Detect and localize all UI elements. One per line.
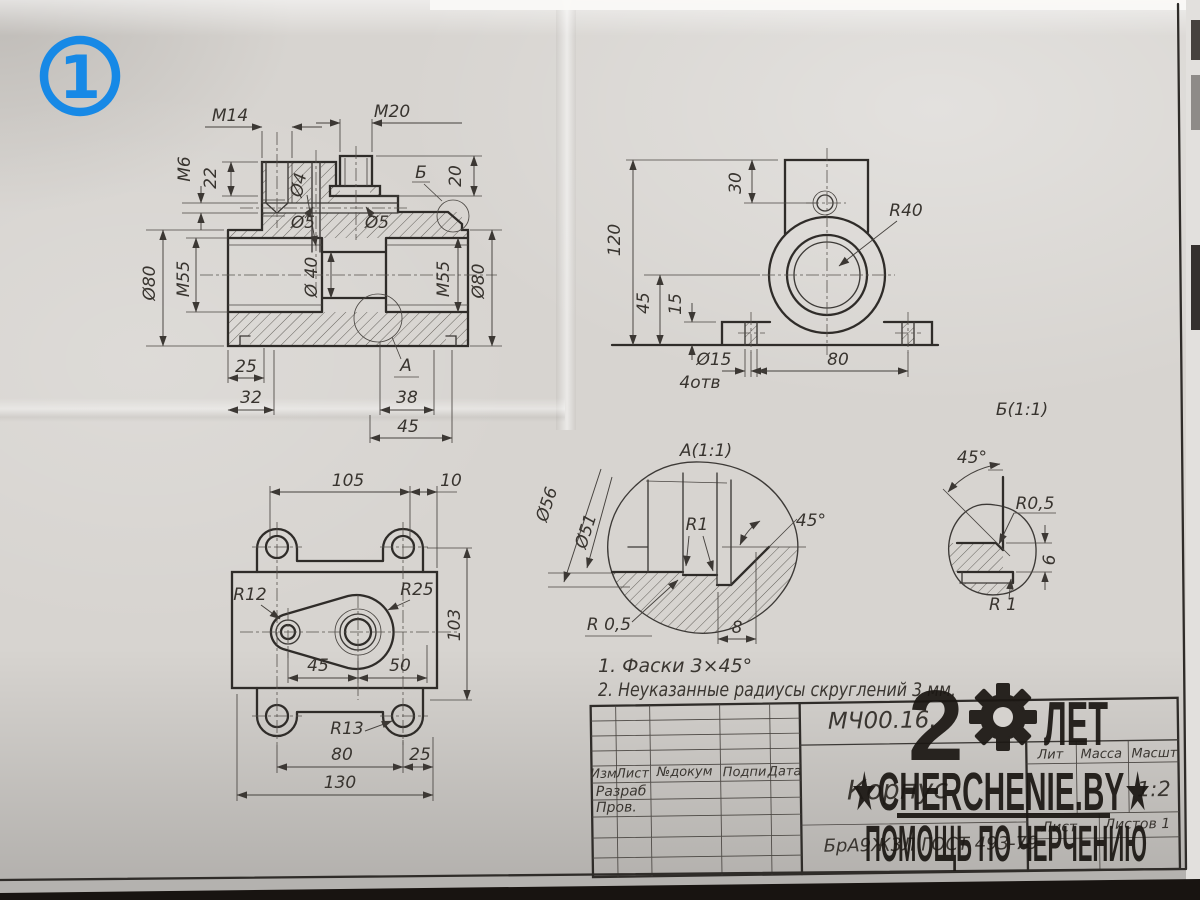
detail-b-view: Б(1:1) 45° R0,5 6 R 1	[935, 400, 1060, 615]
dim-label-15: 15	[666, 293, 686, 315]
dim-label-r05-a: R 0,5	[587, 615, 631, 635]
front-view: 120 30 R40 45 15 Ø15 4отв 80	[605, 148, 938, 393]
dim-label-d80-left: Ø80	[140, 265, 160, 301]
dim-label-m20: М20	[374, 102, 410, 122]
table-surface	[0, 879, 1200, 900]
dim-label-r25: R25	[400, 580, 433, 600]
dim-label-45h: 45	[634, 292, 654, 314]
dim-label-8: 8	[732, 618, 743, 638]
dim-label-m14: М14	[212, 106, 248, 126]
dim-label-45t: 45	[307, 656, 329, 676]
dim-label-r12: R12	[233, 585, 266, 605]
watermark-tagline: ПОМОЩЬ ПО ЧЕРЧЕНИЮ	[865, 815, 1147, 872]
tb-header-masht: Масшт	[1131, 746, 1177, 762]
dim-label-38: 38	[396, 388, 418, 408]
dim-label-m55-left: М55	[174, 261, 194, 297]
dim-label-r40: R40	[889, 201, 922, 221]
dim-label-d56: Ø56	[532, 485, 562, 526]
tb-row-razrab: Разраб	[596, 783, 647, 800]
drawing-sheet: М14 М20 М6 22 Ø4 Ø5 Ø5 Б 20 Ø80 М55 Ø 40…	[0, 0, 1200, 900]
tb-header-data: Дата	[767, 764, 802, 779]
dim-label-45deg-a: 45°	[796, 511, 826, 531]
detail-b-title: Б(1:1)	[996, 400, 1048, 420]
top-view: 105 10 R12 R25 103 45 50 R13 80 25 130	[232, 471, 472, 801]
dim-label-d80-right: Ø80	[469, 263, 489, 299]
detail-a-view: А(1:1) Ø56 Ø51 R1 45° R 0,5 8	[532, 441, 826, 645]
dim-label-20: 20	[446, 165, 466, 187]
dim-label-m6: М6	[175, 156, 195, 182]
detail-a-title: А(1:1)	[679, 441, 732, 461]
dim-label-45deg-b: 45°	[957, 448, 987, 468]
note-1: 1. Фаски 3×45°	[598, 655, 752, 677]
dim-label-103: 103	[445, 609, 465, 641]
tb-header-list: Лист	[615, 766, 650, 781]
dim-label-30: 30	[726, 172, 746, 194]
tb-header-dokum: №докум	[656, 764, 713, 780]
tb-row-prov: Пров.	[596, 799, 637, 816]
dim-label-d5-left: Ø5	[290, 213, 315, 233]
dim-label-m55-right: М55	[434, 261, 454, 297]
page-number-badge: 1	[44, 40, 116, 113]
dim-label-r1-b: R 1	[989, 595, 1017, 615]
section-view: М14 М20 М6 22 Ø4 Ø5 Ø5 Б 20 Ø80 М55 Ø 40…	[140, 102, 502, 443]
page-number: 1	[59, 43, 101, 113]
dim-label-4otv: 4отв	[679, 373, 720, 393]
dim-label-25: 25	[235, 357, 257, 377]
dim-label-r1-a: R1	[686, 515, 709, 535]
technical-notes: 1. Фаски 3×45° 2. Неуказанные радиусы ск…	[598, 655, 956, 701]
dim-label-d5-right: Ø5	[364, 213, 389, 233]
note-2: 2. Неуказанные радиусы скруглений 3 мм.	[598, 679, 956, 701]
dim-label-80: 80	[827, 350, 849, 370]
dim-label-45: 45	[397, 417, 419, 437]
detail-callout-a: А	[399, 356, 412, 376]
dim-label-50: 50	[389, 656, 411, 676]
detail-callout-b: Б	[415, 163, 427, 183]
dim-label-r13: R13	[330, 719, 363, 739]
dim-label-25t: 25	[409, 745, 431, 765]
dim-label-r05-b: R0,5	[1016, 494, 1055, 514]
dim-label-22: 22	[201, 167, 221, 189]
dim-label-d15: Ø15	[695, 350, 731, 370]
dim-label-130: 130	[324, 773, 356, 793]
tb-header-izm: Изм	[590, 767, 617, 782]
dim-label-d40: Ø 40	[302, 257, 322, 298]
dim-label-32: 32	[240, 388, 262, 408]
dim-label-6: 6	[1040, 554, 1060, 565]
watermark-years-word: ЛЕТ	[1044, 690, 1108, 759]
dim-label-10: 10	[440, 471, 462, 491]
tb-header-podpi: Подпи	[723, 765, 767, 781]
dim-label-80t: 80	[331, 745, 353, 765]
dim-label-105: 105	[332, 471, 364, 491]
dim-label-120: 120	[605, 224, 625, 256]
gear-icon	[969, 683, 1037, 751]
photographed-drawing: М14 М20 М6 22 Ø4 Ø5 Ø5 Б 20 Ø80 М55 Ø 40…	[0, 0, 1200, 900]
